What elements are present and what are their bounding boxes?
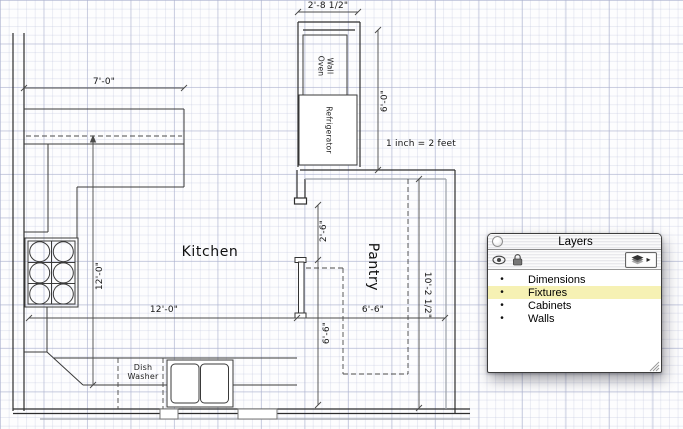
layers-palette-window: Layers ▸ • Dimension xyxy=(487,233,662,373)
dim-kitchen-depth: 12'-0" xyxy=(95,262,105,290)
wall-inner-faces xyxy=(40,179,470,419)
dim-door-opening: 2'-6" xyxy=(319,220,329,242)
dim-pantry-width: 6'-6" xyxy=(362,305,384,315)
dim-pantry-depth-inner: 6'-6" xyxy=(322,322,332,344)
dim-kitchen-width: 12'-0" xyxy=(150,305,178,315)
door-leaf xyxy=(295,258,306,319)
layer-label: Dimensions xyxy=(528,274,585,286)
refrigerator-label: Refrigerator xyxy=(324,106,333,153)
layers-icon xyxy=(631,255,644,265)
close-button[interactable] xyxy=(492,236,503,247)
layer-row-dimensions[interactable]: • Dimensions xyxy=(488,273,661,286)
layers-list: • Dimensions • Fixtures • Cabinets • Wal… xyxy=(488,270,661,373)
dim-alcove-width: 2'-8 1/2" xyxy=(308,1,348,11)
palette-toolbar: ▸ xyxy=(488,250,661,270)
layer-row-walls[interactable]: • Walls xyxy=(488,312,661,325)
wall-oven-line2: Oven xyxy=(316,56,325,77)
eye-icon[interactable] xyxy=(492,255,506,265)
dim-pantry-height: 10'-2 1/2" xyxy=(422,272,432,318)
palette-titlebar[interactable]: Layers xyxy=(488,234,661,250)
dim-alcove-height: 6'-0" xyxy=(380,90,390,112)
scale-note: 1 inch = 2 feet xyxy=(386,139,456,149)
palette-title: Layers xyxy=(503,236,648,248)
room-label-kitchen: Kitchen xyxy=(182,244,239,260)
layer-visibility-dot[interactable]: • xyxy=(496,288,508,298)
wall-oven-label: WallOven xyxy=(316,56,333,77)
layer-label: Fixtures xyxy=(528,287,567,299)
layers-menu-button[interactable]: ▸ xyxy=(625,252,657,268)
layer-row-fixtures[interactable]: • Fixtures xyxy=(488,286,661,299)
dim-upper-cabinets: 7'-0" xyxy=(93,77,115,87)
menu-arrow-icon: ▸ xyxy=(646,256,650,264)
walls xyxy=(13,22,470,414)
layer-visibility-dot[interactable]: • xyxy=(496,275,508,285)
dish-washer-label: DishWasher xyxy=(128,363,159,381)
room-label-pantry: Pantry xyxy=(365,243,381,291)
layer-visibility-dot[interactable]: • xyxy=(496,301,508,311)
lock-icon[interactable] xyxy=(512,253,523,266)
dish-washer-line1: Dish xyxy=(128,363,159,372)
layer-row-cabinets[interactable]: • Cabinets xyxy=(488,299,661,312)
resize-grip[interactable] xyxy=(648,360,660,372)
dish-washer-line2: Washer xyxy=(128,372,159,381)
dimension-lines xyxy=(21,9,448,411)
layer-label: Cabinets xyxy=(528,300,571,312)
wall-oven-line1: Wall xyxy=(325,56,334,77)
layer-visibility-dot[interactable]: • xyxy=(496,314,508,324)
sink xyxy=(167,360,233,407)
drawing-canvas: 7'-0" 2'-8 1/2" 6'-0" 12'-0" 12'-0" 2'-6… xyxy=(0,0,683,429)
cabinets xyxy=(24,109,297,385)
layer-label: Walls xyxy=(528,313,554,325)
stove-cooktop xyxy=(25,238,78,307)
